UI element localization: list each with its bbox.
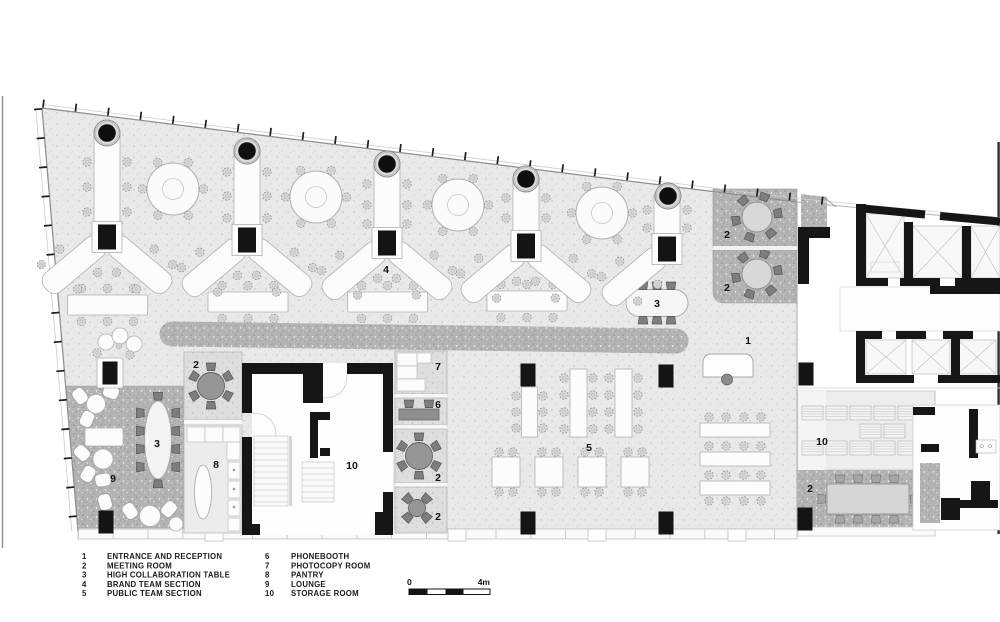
legend-label: PUBLIC TEAM SECTION <box>107 589 202 598</box>
room-label-2: 2 <box>435 472 441 484</box>
legend-label: BRAND TEAM SECTION <box>107 580 201 589</box>
legend-label: LOUNGE <box>291 580 326 589</box>
floor-plan-page: 1 2 2 2 2 2 2 3 3 4 5 6 7 8 9 10 10 1 EN… <box>0 0 1000 622</box>
central-core <box>184 351 447 535</box>
legend-label: MEETING ROOM <box>107 561 172 570</box>
core-rooms-bottomright <box>913 405 1000 530</box>
legend-number: 10 <box>265 589 275 598</box>
room-label-4: 4 <box>383 264 389 276</box>
room-label-9: 9 <box>110 473 116 485</box>
legend-label: STORAGE ROOM <box>291 589 359 598</box>
legend-number: 6 <box>265 552 270 561</box>
floor-plan-drawing: 1 2 2 2 2 2 2 3 3 4 5 6 7 8 9 10 10 1 EN… <box>0 0 1000 622</box>
legend-label: HIGH COLLABORATION TABLE <box>107 571 230 580</box>
room-label-6: 6 <box>435 399 441 411</box>
legend-number: 5 <box>82 589 87 598</box>
round-column <box>655 183 681 209</box>
legend-number: 2 <box>82 561 87 570</box>
elevator-bank-lower <box>856 331 1000 383</box>
legend-label: PANTRY <box>291 571 324 580</box>
legend-number: 9 <box>265 580 270 589</box>
planter-band <box>172 334 676 341</box>
legend: 1 ENTRANCE AND RECEPTION 2 MEETING ROOM … <box>82 552 370 598</box>
scale-start-label: 0 <box>407 577 412 587</box>
room-label-2: 2 <box>807 483 813 495</box>
pantry-island <box>195 465 212 519</box>
round-column <box>374 151 400 177</box>
round-column <box>513 166 539 192</box>
room-label-10: 10 <box>346 460 358 472</box>
room-label-5: 5 <box>586 442 592 454</box>
elevator-bank-upper <box>856 204 1000 286</box>
reception-desk <box>703 354 753 377</box>
room-label-7: 7 <box>435 361 441 373</box>
legend-number: 4 <box>82 580 87 589</box>
room-label-2: 2 <box>724 229 730 241</box>
room-label-2: 2 <box>435 511 441 523</box>
room-label-10: 10 <box>816 436 828 448</box>
room-label-8: 8 <box>213 459 219 471</box>
room-label-3: 3 <box>154 438 160 450</box>
legend-number: 7 <box>265 561 270 570</box>
legend-number: 3 <box>82 571 87 580</box>
scale-end-label: 4m <box>478 577 491 587</box>
legend-number: 1 <box>82 552 87 561</box>
legend-label: PHOTOCOPY ROOM <box>291 561 370 570</box>
legend-label: ENTRANCE AND RECEPTION <box>107 552 222 561</box>
scale-bar: 0 4m <box>407 577 490 595</box>
room-label-2: 2 <box>193 359 199 371</box>
room-label-2: 2 <box>724 282 730 294</box>
room-label-1: 1 <box>745 335 751 347</box>
legend-label: PHONEBOOTH <box>291 552 349 561</box>
room-label-3: 3 <box>654 298 660 310</box>
round-column <box>94 120 120 146</box>
round-column <box>234 138 260 164</box>
room-divider <box>713 246 797 250</box>
legend-number: 8 <box>265 571 270 580</box>
